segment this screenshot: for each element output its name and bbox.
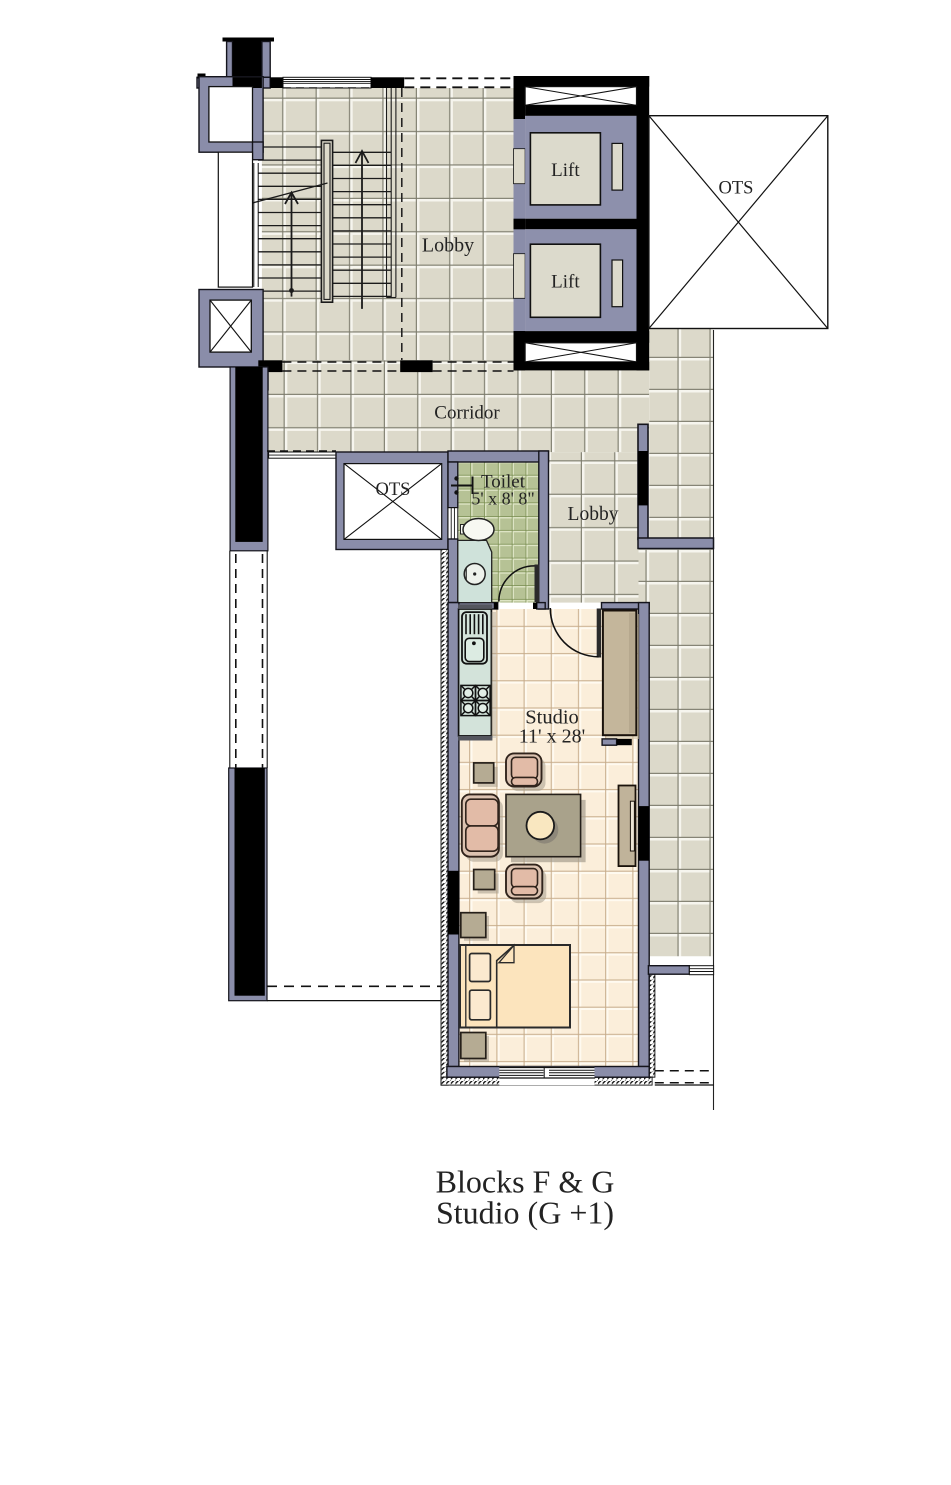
svg-text:11' x 28': 11' x 28' [519, 726, 585, 748]
svg-text:Lift: Lift [551, 272, 580, 293]
svg-text:OTS: OTS [719, 179, 754, 199]
svg-text:Lobby: Lobby [568, 504, 619, 525]
svg-text:5' x 8' 8": 5' x 8' 8" [471, 489, 534, 509]
svg-text:Lift: Lift [551, 160, 580, 181]
svg-text:Studio (G +1): Studio (G +1) [436, 1195, 614, 1231]
svg-text:OTS: OTS [376, 480, 411, 500]
svg-text:Corridor: Corridor [434, 403, 500, 424]
svg-text:Lobby: Lobby [422, 235, 474, 257]
